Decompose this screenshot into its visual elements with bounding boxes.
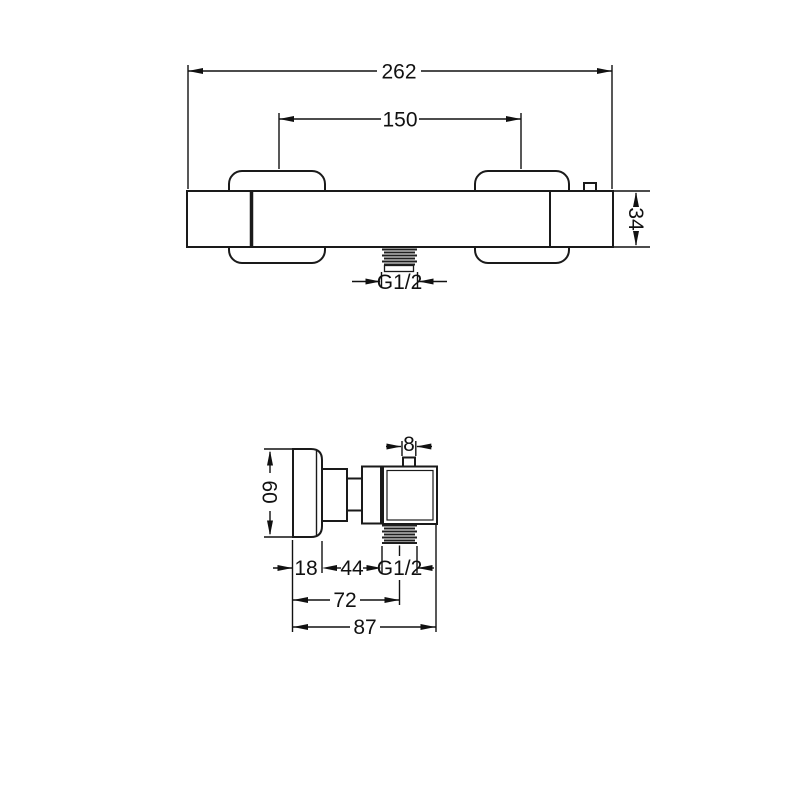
dim-body-depth-label: 44 xyxy=(340,557,364,580)
valve-body xyxy=(383,467,437,525)
dim-handle-height: 60 xyxy=(258,449,293,537)
dim-handle-depth: 18 xyxy=(273,557,318,580)
dim-body-height-label: 34 xyxy=(624,207,647,231)
side-view: 8 60 18 xyxy=(258,433,438,639)
front-view: 262 150 34 xyxy=(187,61,650,295)
dim-mounting-centers: 150 xyxy=(279,109,521,170)
dim-top-port-width-label: 8 xyxy=(403,433,415,456)
dim-mounting-centers-label: 150 xyxy=(382,109,417,132)
dim-handle-height-label: 60 xyxy=(258,480,281,503)
dim-overall-depth: 87 xyxy=(293,616,436,639)
dim-body-depth: 44 xyxy=(322,557,382,580)
dim-handle-depth-label: 18 xyxy=(294,557,317,580)
drawing-svg: 262 150 34 xyxy=(0,0,800,800)
dim-depth-to-outlet-axis: 72 xyxy=(293,589,400,612)
dim-outlet-thread-front: G1/2 xyxy=(352,271,447,294)
handle xyxy=(293,449,322,537)
dim-top-port-width: 8 xyxy=(386,433,432,456)
dim-overall-width-label: 262 xyxy=(381,61,416,84)
body-flange xyxy=(362,467,381,524)
outlet-thread-front xyxy=(382,250,417,265)
technical-drawing-canvas: 262 150 34 xyxy=(0,0,800,800)
temp-safety-button xyxy=(584,183,596,191)
dim-outlet-thread-front-label: G1/2 xyxy=(377,271,423,294)
handle-hub xyxy=(322,469,347,521)
dim-outlet-thread-side-label: G1/2 xyxy=(377,557,423,580)
dim-overall-depth-label: 87 xyxy=(353,616,376,639)
dim-body-height: 34 xyxy=(614,191,650,247)
dim-outlet-thread-side: G1/2 xyxy=(377,557,434,580)
dim-depth-to-outlet-axis-label: 72 xyxy=(333,589,356,612)
outlet-thread-side xyxy=(382,526,417,544)
